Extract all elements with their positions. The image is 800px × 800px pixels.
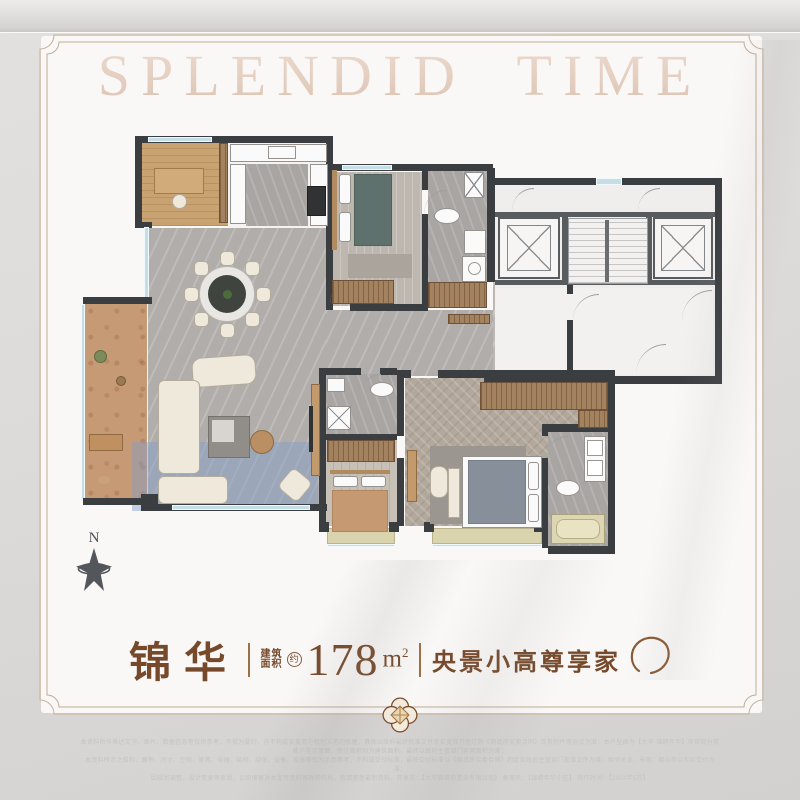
wall bbox=[83, 498, 147, 505]
pillow bbox=[361, 476, 386, 487]
wall bbox=[548, 546, 615, 554]
title-bar: 锦华 建筑 面积 约 178 m2 央景小高尊享家 bbox=[0, 629, 800, 690]
window-wall bbox=[144, 227, 149, 299]
compass-north-label: N bbox=[72, 530, 116, 547]
wardrobe bbox=[327, 440, 395, 462]
unit-name: 锦华 bbox=[129, 629, 239, 690]
compass-north-icon bbox=[74, 548, 114, 594]
divider bbox=[419, 643, 421, 677]
tv bbox=[309, 406, 313, 452]
area-unit: m2 bbox=[383, 645, 409, 673]
table-plant bbox=[223, 290, 232, 299]
lounge-sofa bbox=[191, 354, 257, 388]
wall bbox=[542, 458, 548, 548]
toilet bbox=[370, 382, 394, 397]
stone bbox=[98, 476, 110, 484]
area-label: 建筑 面积 bbox=[261, 650, 283, 670]
dining-chair bbox=[220, 323, 235, 338]
tagline: 央景小高尊享家 bbox=[432, 642, 621, 677]
window bbox=[327, 544, 395, 547]
bookshelf bbox=[219, 143, 228, 223]
disclaimer-line: 本资料所示之结构、面积、尺寸、空间、家具、电器、装修、绿化、设备、设施等仅为示意… bbox=[80, 757, 720, 775]
dining-chair bbox=[220, 251, 235, 266]
disclaimer-line: 本资料所作表达文字、图片、数据信息等仅供参考，不视为要约，亦不构成买卖双方权利义… bbox=[80, 739, 720, 757]
pillow bbox=[339, 212, 351, 242]
shower bbox=[464, 172, 484, 198]
disclaimer-text: 本资料所作表达文字、图片、数据信息等仅供参考，不视为要约，亦不构成买卖双方权利义… bbox=[80, 739, 720, 784]
wall bbox=[608, 376, 615, 550]
window bbox=[172, 505, 310, 510]
sofa bbox=[158, 380, 200, 474]
sofa-chaise bbox=[158, 476, 228, 504]
area-value: 178 bbox=[307, 640, 379, 680]
elevator-right-shaft-x bbox=[661, 225, 705, 271]
staircase-divider bbox=[605, 220, 609, 282]
balcony-glazing bbox=[81, 304, 85, 500]
dresser bbox=[407, 450, 417, 502]
brush-swoosh-icon bbox=[627, 630, 671, 678]
elevator-left-shaft-x bbox=[507, 225, 551, 271]
shower bbox=[327, 406, 351, 430]
wall bbox=[350, 304, 428, 311]
wall bbox=[389, 522, 399, 532]
bed-blanket bbox=[354, 174, 392, 246]
splendid-time-watermark: SPLENDID TIME bbox=[0, 42, 800, 109]
quatrefoil-ornament-icon bbox=[381, 696, 419, 734]
bench bbox=[448, 468, 460, 518]
vanity-sink bbox=[327, 378, 345, 392]
wall bbox=[319, 368, 326, 526]
bed-blanket bbox=[468, 460, 526, 524]
coffee-table-top bbox=[212, 420, 234, 442]
dining-chair bbox=[194, 312, 209, 327]
toilet bbox=[556, 480, 580, 496]
floor-plan bbox=[80, 128, 730, 593]
desk-chair bbox=[172, 194, 187, 209]
wall bbox=[83, 297, 145, 304]
area-label-bottom: 面积 bbox=[261, 660, 283, 670]
vanity-sink bbox=[587, 440, 603, 456]
bed-headboard bbox=[330, 470, 390, 474]
vanity-sink bbox=[464, 230, 486, 254]
approx-badge: 约 bbox=[287, 652, 302, 667]
bedroom-chair bbox=[430, 466, 448, 498]
bed-headboard bbox=[332, 170, 337, 250]
pillow bbox=[528, 494, 539, 522]
pillow bbox=[333, 476, 358, 487]
window bbox=[148, 137, 212, 142]
wardrobe bbox=[578, 410, 608, 428]
planter bbox=[94, 350, 107, 363]
pillow bbox=[339, 174, 351, 204]
window bbox=[596, 178, 622, 185]
kitchen-floor bbox=[246, 164, 308, 226]
wall bbox=[397, 458, 404, 526]
window bbox=[432, 544, 542, 547]
toilet bbox=[434, 208, 460, 224]
wall bbox=[380, 368, 397, 375]
dining-chair bbox=[184, 287, 199, 302]
divider bbox=[248, 643, 250, 677]
wall bbox=[567, 320, 573, 380]
outdoor-bench bbox=[89, 434, 123, 451]
kitchen-counter bbox=[230, 164, 246, 224]
desk bbox=[154, 168, 204, 194]
wardrobe bbox=[332, 280, 394, 304]
disclaimer-line: 因规划调整、设计变更等原因，公司保留对本宣传资料修改的权利，敬请留意最新资料。开… bbox=[80, 775, 720, 784]
pillow bbox=[528, 462, 539, 490]
vanity-sink bbox=[587, 460, 603, 476]
bathtub-basin bbox=[556, 519, 600, 539]
kitchen-sink bbox=[268, 146, 296, 159]
wall bbox=[487, 168, 495, 282]
planter bbox=[116, 376, 126, 386]
wall bbox=[135, 136, 142, 228]
wall bbox=[397, 378, 404, 436]
dining-chair bbox=[245, 261, 260, 276]
washer-drum bbox=[468, 262, 481, 275]
wall bbox=[319, 522, 329, 532]
stove bbox=[307, 186, 326, 216]
bay-window-sill bbox=[432, 528, 542, 544]
elevator-lobby bbox=[495, 288, 713, 374]
wall bbox=[397, 370, 411, 378]
wardrobe bbox=[480, 382, 608, 410]
area-label-top: 建筑 bbox=[261, 650, 283, 660]
wall bbox=[422, 168, 428, 190]
dining-chair bbox=[256, 287, 271, 302]
hall-console bbox=[448, 314, 490, 324]
wall bbox=[715, 178, 722, 384]
dining-chair bbox=[245, 312, 260, 327]
rug bbox=[348, 254, 412, 278]
bed-blanket bbox=[332, 490, 388, 532]
side-table bbox=[250, 430, 274, 454]
window bbox=[342, 165, 392, 170]
poster-page: SPLENDID TIME bbox=[0, 0, 800, 800]
dining-chair bbox=[194, 261, 209, 276]
wall bbox=[319, 368, 361, 375]
shoe-cabinet bbox=[428, 282, 487, 308]
